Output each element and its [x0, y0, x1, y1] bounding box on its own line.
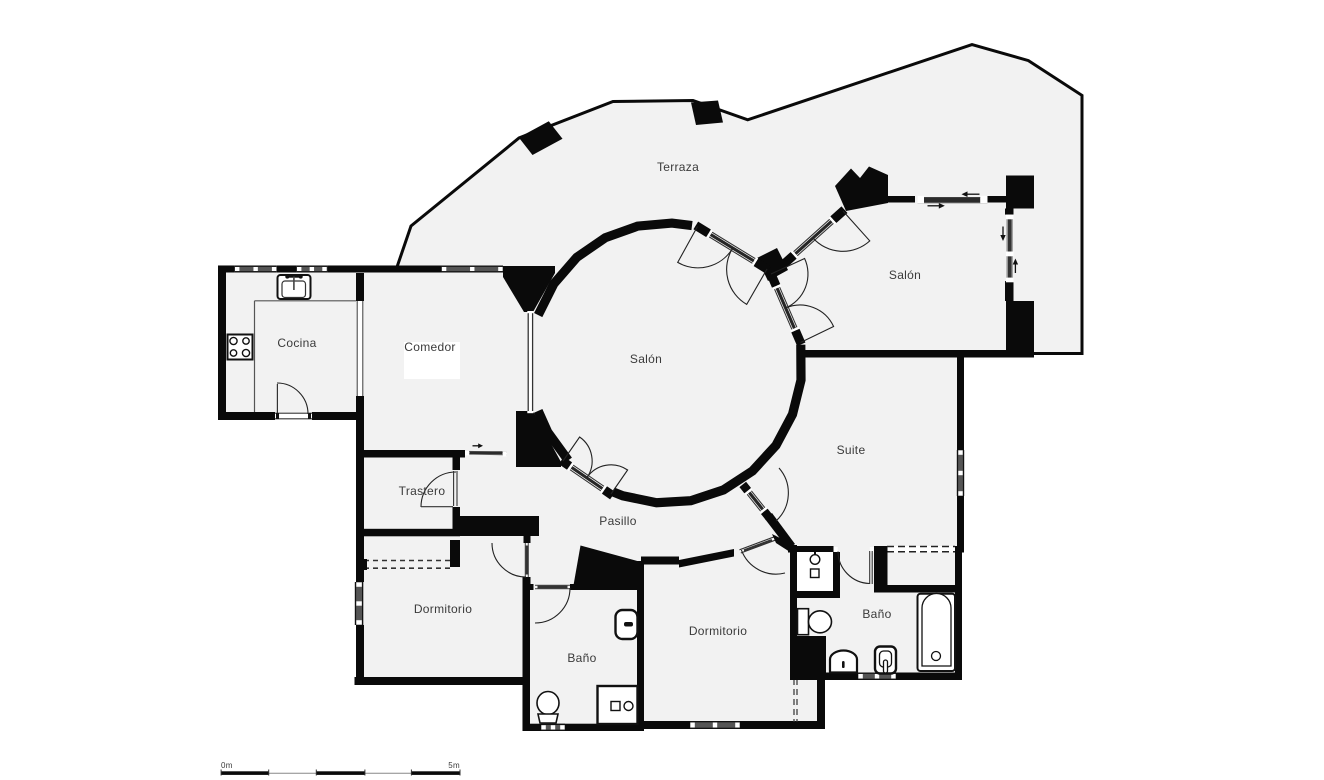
svg-text:Dormitorio: Dormitorio	[689, 624, 747, 638]
svg-text:Dormitorio: Dormitorio	[414, 602, 472, 616]
svg-text:Cocina: Cocina	[277, 336, 316, 350]
svg-text:5m: 5m	[448, 761, 460, 770]
svg-text:Suite: Suite	[837, 443, 866, 457]
svg-text:Pasillo: Pasillo	[599, 514, 636, 528]
svg-text:Salón: Salón	[889, 268, 921, 282]
svg-text:Comedor: Comedor	[404, 340, 455, 354]
svg-text:Trastero: Trastero	[399, 484, 446, 498]
svg-text:Terraza: Terraza	[657, 160, 699, 174]
svg-text:Baño: Baño	[567, 651, 596, 665]
svg-text:Salón: Salón	[630, 352, 662, 366]
svg-text:0m: 0m	[221, 761, 233, 770]
svg-text:Baño: Baño	[862, 607, 891, 621]
